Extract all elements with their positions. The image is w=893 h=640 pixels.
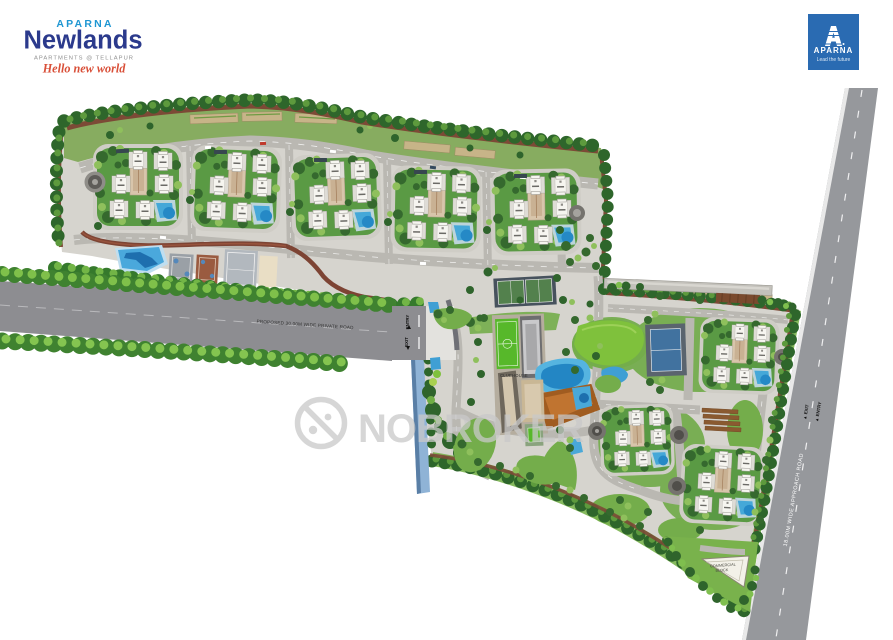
svg-text:CLUBHOUSE: CLUBHOUSE bbox=[500, 373, 528, 378]
svg-text:Hello new world: Hello new world bbox=[42, 62, 127, 76]
svg-text:NOBROKER: NOBROKER bbox=[358, 407, 584, 451]
svg-text:EXIT: EXIT bbox=[404, 337, 409, 347]
svg-text:Lead the future: Lead the future bbox=[817, 57, 851, 63]
svg-text:Newlands: Newlands bbox=[23, 27, 142, 55]
svg-text:APARNA: APARNA bbox=[814, 46, 854, 55]
